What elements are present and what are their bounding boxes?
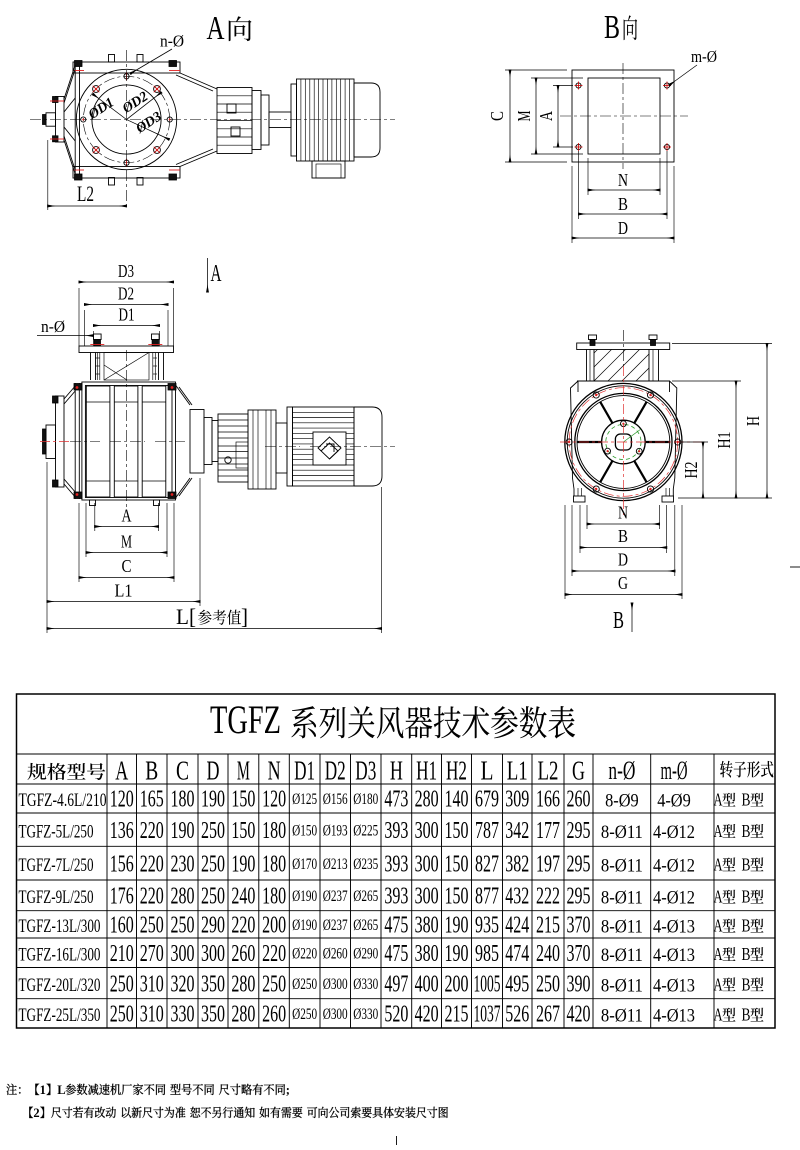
- svg-text:160: 160: [110, 913, 134, 939]
- svg-text:120: 120: [110, 787, 134, 813]
- svg-text:526: 526: [505, 1002, 529, 1028]
- svg-text:260: 260: [567, 787, 591, 813]
- svg-text:260: 260: [262, 1002, 286, 1028]
- svg-text:B: B: [145, 756, 158, 786]
- svg-text:N: N: [618, 503, 628, 523]
- svg-text:Ø225: Ø225: [353, 822, 378, 839]
- svg-text:H1: H1: [714, 432, 734, 449]
- svg-text:C: C: [122, 556, 132, 576]
- svg-text:300: 300: [415, 818, 439, 844]
- svg-text:Ø260: Ø260: [323, 946, 348, 963]
- svg-text:250: 250: [201, 818, 225, 844]
- svg-text:210: 210: [110, 941, 134, 967]
- svg-text:8-Ø11: 8-Ø11: [601, 975, 643, 996]
- svg-text:G: G: [572, 756, 585, 786]
- svg-text:8-Ø11: 8-Ø11: [601, 855, 643, 876]
- svg-text:222: 222: [536, 884, 560, 910]
- svg-text:180: 180: [262, 818, 286, 844]
- svg-text:Ø265: Ø265: [353, 917, 378, 934]
- svg-text:TGFZ-13L/300: TGFZ-13L/300: [19, 916, 101, 937]
- svg-text:A: A: [207, 10, 225, 47]
- svg-text:n-Ø: n-Ø: [608, 756, 635, 785]
- svg-text:Ø237: Ø237: [323, 917, 348, 934]
- svg-text:L1: L1: [115, 581, 133, 601]
- svg-text:D: D: [207, 756, 220, 786]
- svg-text:B: B: [742, 821, 751, 841]
- svg-text:Ø300: Ø300: [323, 1006, 348, 1023]
- svg-text:D2: D2: [118, 284, 134, 304]
- svg-text:679: 679: [475, 787, 499, 813]
- svg-text:M: M: [514, 111, 534, 122]
- svg-text:230: 230: [171, 851, 195, 877]
- svg-text:382: 382: [505, 851, 529, 877]
- svg-text:B: B: [613, 608, 624, 634]
- svg-text:D: D: [618, 218, 628, 238]
- svg-text:Ø170: Ø170: [292, 856, 317, 873]
- svg-text:220: 220: [140, 851, 164, 877]
- svg-text:310: 310: [140, 1002, 164, 1028]
- svg-text:424: 424: [505, 913, 529, 939]
- svg-text:393: 393: [384, 851, 408, 877]
- svg-text:G: G: [618, 573, 628, 593]
- svg-text:280: 280: [231, 1002, 255, 1028]
- svg-text:4-Ø13: 4-Ø13: [653, 1006, 695, 1027]
- svg-text:A: A: [714, 974, 723, 994]
- svg-text:390: 390: [567, 971, 591, 997]
- svg-text:420: 420: [415, 1002, 439, 1028]
- svg-text:A: A: [211, 261, 222, 287]
- svg-text:300: 300: [171, 941, 195, 967]
- svg-text:2: 2: [33, 1106, 39, 1120]
- svg-text:D2: D2: [325, 756, 346, 786]
- svg-text:A: A: [714, 944, 723, 964]
- svg-text:L1: L1: [507, 756, 528, 786]
- svg-text:L2: L2: [77, 181, 94, 206]
- svg-text:432: 432: [505, 884, 529, 910]
- svg-text:176: 176: [110, 884, 134, 910]
- svg-text:156: 156: [110, 851, 134, 877]
- svg-text:L: L: [57, 1083, 65, 1097]
- svg-text:Ø265: Ø265: [353, 888, 378, 905]
- svg-text:Ø193: Ø193: [323, 822, 348, 839]
- svg-text:TGFZ-7L/250: TGFZ-7L/250: [19, 855, 94, 876]
- svg-text:935: 935: [475, 913, 499, 939]
- svg-text:370: 370: [567, 913, 591, 939]
- svg-text:150: 150: [231, 787, 255, 813]
- svg-text:250: 250: [536, 971, 560, 997]
- svg-text:400: 400: [415, 971, 439, 997]
- svg-text:827: 827: [475, 851, 499, 877]
- svg-text:Ø213: Ø213: [323, 856, 348, 873]
- svg-text:B: B: [742, 916, 751, 936]
- svg-text:330: 330: [171, 1002, 195, 1028]
- svg-text:4-Ø13: 4-Ø13: [653, 945, 695, 966]
- svg-text:Ø220: Ø220: [292, 946, 317, 963]
- svg-text:D: D: [618, 550, 628, 570]
- svg-text:L2: L2: [538, 756, 559, 786]
- svg-text:m-Ø: m-Ø: [691, 47, 717, 66]
- svg-text:4-Ø9: 4-Ø9: [657, 791, 691, 812]
- svg-text:150: 150: [445, 851, 469, 877]
- svg-text:4-Ø13: 4-Ø13: [653, 917, 695, 938]
- svg-text:350: 350: [201, 1002, 225, 1028]
- svg-text:350: 350: [201, 971, 225, 997]
- svg-text:Ø180: Ø180: [353, 791, 378, 808]
- svg-text:8-Ø11: 8-Ø11: [601, 1006, 643, 1027]
- svg-text:B: B: [742, 944, 751, 964]
- svg-text:B: B: [618, 526, 628, 546]
- svg-text:Ø150: Ø150: [292, 822, 317, 839]
- svg-text:ØD1: ØD1: [85, 95, 117, 123]
- svg-text:Ø330: Ø330: [353, 976, 378, 993]
- svg-text:H1: H1: [416, 756, 437, 786]
- svg-text:220: 220: [140, 884, 164, 910]
- svg-text:L[: L[: [176, 604, 196, 629]
- svg-text:8-Ø9: 8-Ø9: [605, 791, 639, 812]
- svg-text:250: 250: [201, 851, 225, 877]
- svg-text:309: 309: [505, 787, 529, 813]
- svg-text:342: 342: [505, 818, 529, 844]
- svg-text:A: A: [714, 1005, 723, 1025]
- svg-text:1037: 1037: [474, 1002, 501, 1028]
- svg-text:310: 310: [140, 971, 164, 997]
- svg-text:475: 475: [384, 941, 408, 967]
- svg-text:290: 290: [201, 913, 225, 939]
- svg-text:n-Ø: n-Ø: [41, 317, 65, 336]
- svg-text:8-Ø11: 8-Ø11: [601, 822, 643, 843]
- svg-text:150: 150: [445, 818, 469, 844]
- svg-text:n-Ø: n-Ø: [160, 32, 184, 51]
- svg-text:A: A: [714, 887, 723, 907]
- svg-text:A: A: [714, 854, 723, 874]
- svg-text:Ø250: Ø250: [292, 976, 317, 993]
- svg-text:220: 220: [231, 913, 255, 939]
- svg-text:420: 420: [567, 1002, 591, 1028]
- svg-text:C: C: [176, 756, 189, 786]
- svg-text:136: 136: [110, 818, 134, 844]
- svg-text:280: 280: [171, 884, 195, 910]
- svg-text:280: 280: [415, 787, 439, 813]
- svg-text:180: 180: [262, 851, 286, 877]
- svg-text:190: 190: [171, 818, 195, 844]
- svg-text:8-Ø11: 8-Ø11: [601, 917, 643, 938]
- svg-text:250: 250: [140, 913, 164, 939]
- svg-text:H: H: [390, 756, 403, 786]
- svg-text:197: 197: [536, 851, 560, 877]
- svg-text:Ø235: Ø235: [353, 856, 378, 873]
- svg-text:475: 475: [384, 913, 408, 939]
- svg-text:H2: H2: [681, 462, 701, 479]
- svg-text:215: 215: [536, 913, 560, 939]
- svg-text:1: 1: [40, 1083, 46, 1097]
- svg-text:B: B: [604, 9, 620, 46]
- svg-text:250: 250: [171, 913, 195, 939]
- svg-text:A: A: [536, 111, 556, 121]
- svg-text:Ø190: Ø190: [292, 888, 317, 905]
- svg-text:8-Ø11: 8-Ø11: [601, 945, 643, 966]
- svg-text:474: 474: [505, 941, 529, 967]
- svg-text:380: 380: [415, 913, 439, 939]
- svg-text:180: 180: [262, 884, 286, 910]
- svg-text:267: 267: [536, 1002, 560, 1028]
- svg-text:280: 280: [231, 971, 255, 997]
- svg-text:H: H: [743, 416, 763, 426]
- svg-text:150: 150: [445, 884, 469, 910]
- svg-text:B: B: [742, 790, 751, 810]
- svg-text:787: 787: [475, 818, 499, 844]
- svg-text:166: 166: [536, 787, 560, 813]
- svg-text:295: 295: [567, 851, 591, 877]
- svg-text:4-Ø13: 4-Ø13: [653, 975, 695, 996]
- svg-text:A: A: [714, 790, 723, 810]
- svg-text:TGFZ-5L/250: TGFZ-5L/250: [19, 821, 94, 842]
- svg-text:393: 393: [384, 884, 408, 910]
- svg-text:8-Ø11: 8-Ø11: [601, 888, 643, 909]
- svg-text:380: 380: [415, 941, 439, 967]
- svg-text:N: N: [268, 756, 281, 786]
- svg-text:190: 190: [445, 913, 469, 939]
- svg-text:220: 220: [262, 941, 286, 967]
- svg-text:200: 200: [445, 971, 469, 997]
- svg-text:120: 120: [262, 787, 286, 813]
- svg-text:ØD3: ØD3: [133, 109, 165, 137]
- svg-text:4-Ø12: 4-Ø12: [653, 822, 695, 843]
- svg-text:877: 877: [475, 884, 499, 910]
- svg-text:1005: 1005: [474, 971, 501, 997]
- svg-text:300: 300: [415, 884, 439, 910]
- svg-text:A: A: [714, 821, 723, 841]
- svg-text:TGFZ-4.6L/210: TGFZ-4.6L/210: [19, 790, 107, 811]
- svg-text:300: 300: [201, 941, 225, 967]
- svg-text:N: N: [618, 170, 628, 190]
- svg-text:Ø190: Ø190: [292, 917, 317, 934]
- svg-text:A: A: [122, 506, 132, 526]
- svg-text:250: 250: [110, 1002, 134, 1028]
- svg-text:520: 520: [384, 1002, 408, 1028]
- svg-text:393: 393: [384, 818, 408, 844]
- svg-text:190: 190: [445, 941, 469, 967]
- svg-text:TGFZ-16L/300: TGFZ-16L/300: [19, 945, 101, 966]
- svg-text:473: 473: [384, 787, 408, 813]
- svg-text:]: ]: [241, 604, 248, 629]
- svg-text:295: 295: [567, 884, 591, 910]
- svg-text:Ø156: Ø156: [323, 791, 348, 808]
- svg-text:Ø290: Ø290: [353, 946, 378, 963]
- svg-text:B: B: [618, 194, 628, 214]
- svg-text:370: 370: [567, 941, 591, 967]
- svg-text:B: B: [742, 974, 751, 994]
- svg-text:270: 270: [140, 941, 164, 967]
- svg-text:240: 240: [536, 941, 560, 967]
- svg-text:L: L: [481, 756, 494, 786]
- svg-text:C: C: [487, 111, 507, 121]
- svg-text:Ø250: Ø250: [292, 1006, 317, 1023]
- svg-text:140: 140: [445, 787, 469, 813]
- svg-text:190: 190: [201, 787, 225, 813]
- svg-text:215: 215: [445, 1002, 469, 1028]
- svg-text:;: ;: [286, 1083, 290, 1097]
- svg-text:B: B: [742, 854, 751, 874]
- svg-text:240: 240: [231, 884, 255, 910]
- svg-text:D1: D1: [294, 756, 315, 786]
- svg-text:295: 295: [567, 818, 591, 844]
- svg-text:260: 260: [231, 941, 255, 967]
- svg-text:220: 220: [140, 818, 164, 844]
- svg-text:320: 320: [171, 971, 195, 997]
- svg-text:B: B: [742, 887, 751, 907]
- svg-text:Ø125: Ø125: [292, 791, 317, 808]
- svg-text:180: 180: [171, 787, 195, 813]
- svg-text:Ø300: Ø300: [323, 976, 348, 993]
- svg-text:4-Ø12: 4-Ø12: [653, 888, 695, 909]
- svg-text:H2: H2: [446, 756, 467, 786]
- svg-text:250: 250: [110, 971, 134, 997]
- svg-text:Ø330: Ø330: [353, 1006, 378, 1023]
- svg-text:M: M: [237, 756, 250, 786]
- svg-text:4-Ø12: 4-Ø12: [653, 855, 695, 876]
- svg-text:D3: D3: [118, 261, 134, 281]
- svg-text:D1: D1: [119, 305, 135, 325]
- svg-text:250: 250: [201, 884, 225, 910]
- svg-text:M: M: [121, 532, 132, 552]
- svg-text:TGFZ-9L/250: TGFZ-9L/250: [19, 887, 94, 908]
- svg-text:200: 200: [262, 913, 286, 939]
- svg-text:B: B: [742, 1005, 751, 1025]
- svg-text:495: 495: [505, 971, 529, 997]
- svg-text:177: 177: [536, 818, 560, 844]
- svg-text:Ø237: Ø237: [323, 888, 348, 905]
- svg-text:TGFZ: TGFZ: [210, 697, 281, 742]
- svg-text:TGFZ-25L/350: TGFZ-25L/350: [19, 1005, 101, 1026]
- svg-text:m-Ø: m-Ø: [661, 756, 688, 785]
- svg-text:300: 300: [415, 851, 439, 877]
- svg-text:250: 250: [262, 971, 286, 997]
- svg-text:TGFZ-20L/320: TGFZ-20L/320: [19, 975, 101, 996]
- svg-text:D3: D3: [355, 756, 376, 786]
- svg-text:190: 190: [231, 851, 255, 877]
- svg-text:A: A: [714, 916, 723, 936]
- svg-text:985: 985: [475, 941, 499, 967]
- svg-text:165: 165: [140, 787, 164, 813]
- svg-text:497: 497: [384, 971, 408, 997]
- svg-text:A: A: [115, 756, 128, 786]
- svg-text:150: 150: [231, 818, 255, 844]
